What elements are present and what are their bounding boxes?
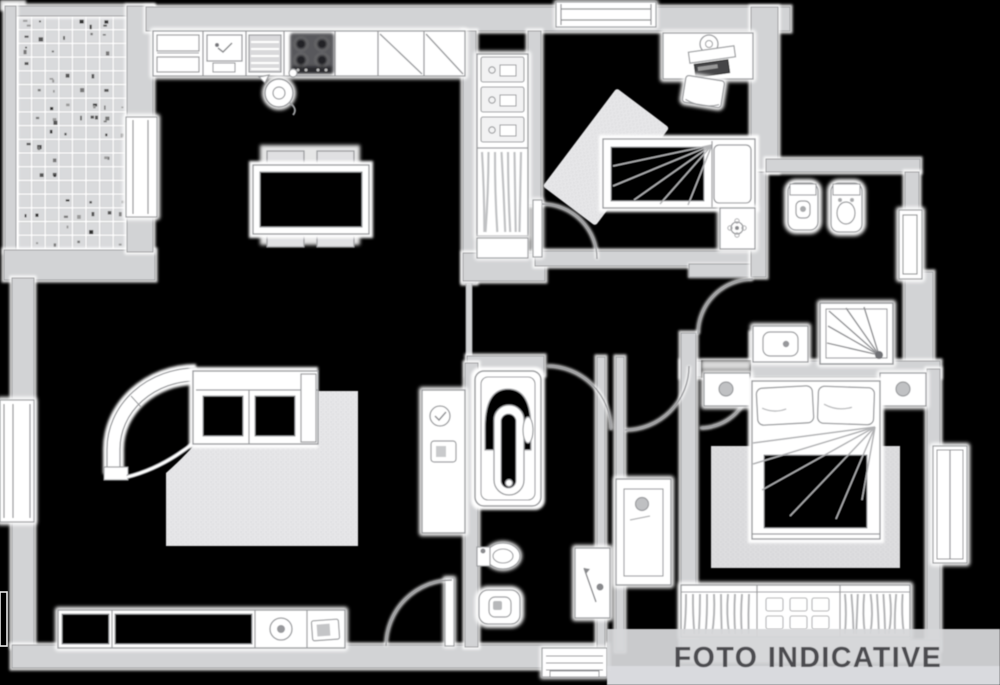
svg-text:FOTO INDICATIVE: FOTO INDICATIVE	[674, 642, 942, 674]
